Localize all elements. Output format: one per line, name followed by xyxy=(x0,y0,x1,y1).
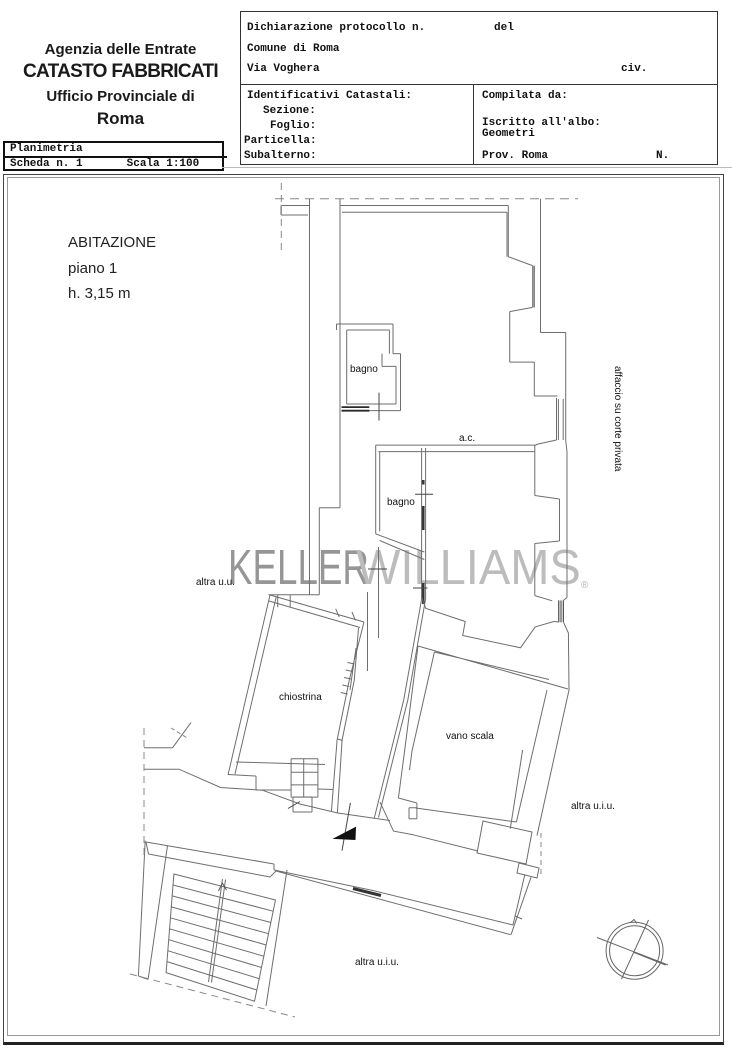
svg-text:bagno: bagno xyxy=(350,364,378,375)
svg-text:affaccio su corte privata: affaccio su corte privata xyxy=(612,366,623,472)
svg-text:vano scala: vano scala xyxy=(446,731,494,742)
svg-text:chiostrina: chiostrina xyxy=(279,692,322,703)
svg-text:WILLIAMS: WILLIAMS xyxy=(356,541,581,595)
svg-text:altra u.i.u.: altra u.i.u. xyxy=(355,957,399,968)
svg-text:altra u.i.u.: altra u.i.u. xyxy=(571,801,615,812)
svg-text:®: ® xyxy=(581,580,589,591)
svg-text:bagno: bagno xyxy=(387,497,415,508)
svg-text:altra u.u.: altra u.u. xyxy=(196,577,235,588)
svg-text:KELLER: KELLER xyxy=(228,541,369,595)
svg-text:a.c.: a.c. xyxy=(459,433,475,444)
